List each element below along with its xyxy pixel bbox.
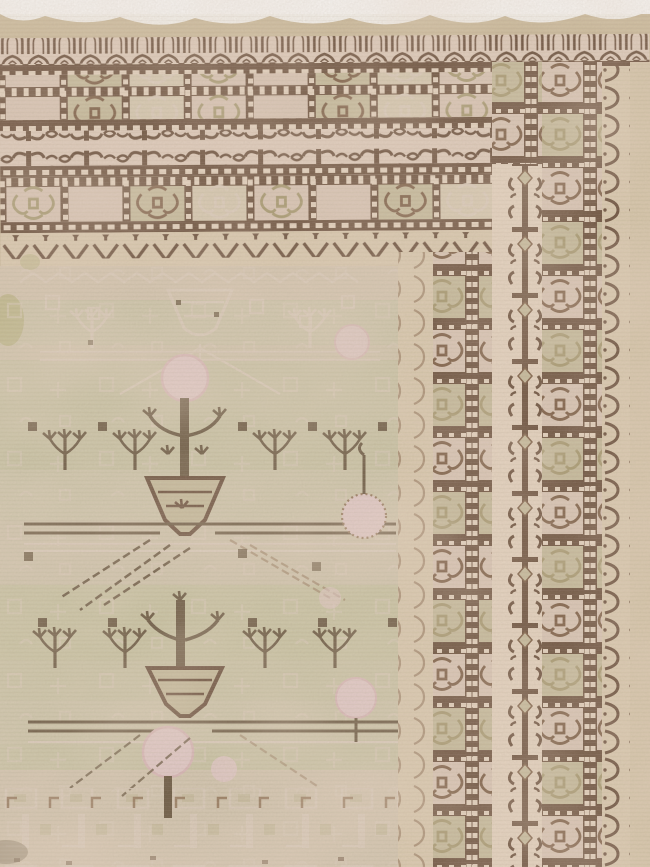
rug-photograph bbox=[0, 0, 650, 867]
rug-photo-canvas bbox=[0, 0, 650, 867]
weave-texture-overlay bbox=[0, 14, 650, 867]
